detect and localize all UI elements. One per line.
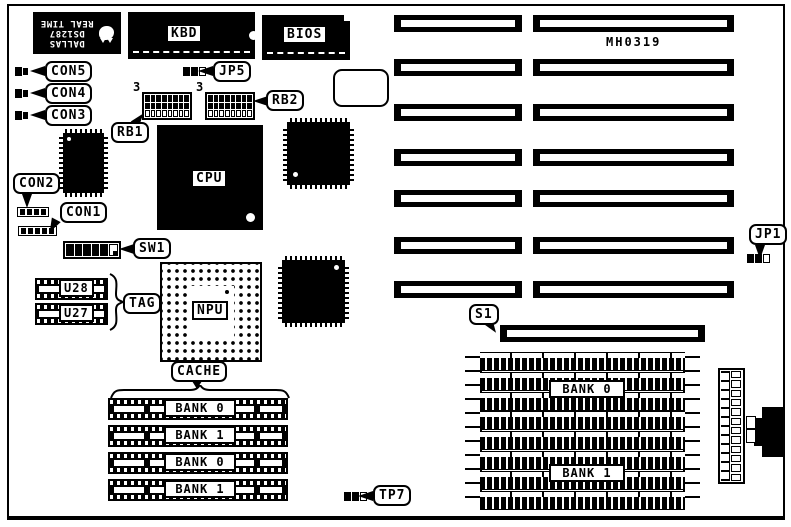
qfp1-pin1-dot <box>67 137 71 141</box>
kbd-chip-dash <box>133 51 250 53</box>
con5-jumper-icon <box>15 67 29 76</box>
cache-bank-row: BANK 0 <box>108 452 288 474</box>
cache-bank-label: BANK 0 <box>164 399 236 417</box>
npu-socket: NPU <box>160 262 262 362</box>
sw1-dip-switch <box>63 241 121 259</box>
rb2-pin1-marker: 3 <box>196 80 203 94</box>
jp5-callout: JP5 <box>213 61 251 82</box>
tag-callout: TAG <box>123 293 161 314</box>
qfp1-pins <box>104 137 108 189</box>
simm-bank-label: BANK 1 <box>549 464 625 482</box>
qfp3-chip <box>282 260 345 323</box>
jp1-callout: JP1 <box>749 224 787 245</box>
cache-row-gap <box>150 433 164 439</box>
cache-row-gap <box>114 433 144 439</box>
cache-bank-row: BANK 1 <box>108 425 288 447</box>
cache-row-gap <box>150 487 164 493</box>
isa-slot-segment <box>533 15 734 32</box>
qfp2-chip <box>287 122 350 185</box>
u28-chip: U28 <box>35 278 108 300</box>
con5-pointer <box>30 66 45 76</box>
cpu-chip: CPU <box>157 125 263 230</box>
bios-chip-dash <box>267 52 345 54</box>
cache-bank-label: BANK 1 <box>164 426 236 444</box>
qfp2-pins <box>290 185 347 189</box>
isa-slot-segment <box>533 190 734 207</box>
bios-chip: BIOS <box>262 15 350 60</box>
rtc-chip: DALLAS DS1287 REAL TIME <box>33 12 121 54</box>
dallas-logo-icon <box>99 26 114 40</box>
qfp2-pin1-dot <box>293 172 298 177</box>
isa-slot-segment <box>394 190 522 207</box>
cache-row-gap <box>150 460 164 466</box>
isa-slot-segment <box>394 149 522 166</box>
cache-row-gap <box>236 406 254 412</box>
simm-socket-area: BANK 0 BANK 1 <box>465 352 700 510</box>
rtc-line: REAL TIME <box>40 18 93 28</box>
cache-callout: CACHE <box>171 361 227 382</box>
u27-body-gap <box>39 311 59 317</box>
simm-socket <box>480 431 685 450</box>
con4-callout: CON4 <box>45 83 92 104</box>
sw1-pointer <box>119 244 134 254</box>
con2-header <box>17 207 49 217</box>
board-id: MH0319 <box>606 35 661 49</box>
cache-row-gap <box>236 460 254 466</box>
isa-slot-segment <box>533 104 734 121</box>
jp1-pointer <box>755 245 765 259</box>
jp5-pointer <box>198 66 213 76</box>
kbd-notch <box>249 31 258 40</box>
kbd-label: KBD <box>166 24 202 43</box>
cache-bank-row: BANK 0 <box>108 398 288 420</box>
isa-slot-segment <box>394 59 522 76</box>
isa-slot-segment <box>394 104 522 121</box>
u27-label: U27 <box>59 304 94 322</box>
keyboard-connector-pin <box>746 416 756 429</box>
kbd-chip: KBD <box>128 12 255 59</box>
simm-socket <box>480 491 685 510</box>
cache-row-gap <box>260 487 282 493</box>
simm-socket <box>480 411 685 430</box>
cache-bank-row: BANK 1 <box>108 479 288 501</box>
u28-body-gap <box>39 286 59 292</box>
con4-pointer <box>30 88 45 98</box>
cache-row-gap <box>114 487 144 493</box>
con1-callout: CON1 <box>60 202 107 223</box>
rtc-print: DALLAS DS1287 REAL TIME <box>33 12 121 54</box>
npu-socket-center: NPU <box>188 286 234 338</box>
simm-latch-right <box>683 352 700 510</box>
npu-label: NPU <box>192 301 228 320</box>
cache-row-gap <box>260 433 282 439</box>
cache-bank-label: BANK 0 <box>164 453 236 471</box>
qfp1-pins <box>65 193 102 197</box>
cpu-pin1-dot <box>246 213 255 222</box>
cache-pointer <box>192 381 202 389</box>
rb1-pin1-marker: 3 <box>133 80 140 94</box>
isa-slot-segment <box>533 237 734 254</box>
crystal-oscillator <box>333 69 389 107</box>
con5-callout: CON5 <box>45 61 92 82</box>
rtc-model: DS1287 <box>40 28 93 38</box>
qfp3-pin1-dot <box>334 265 339 270</box>
rb1-callout: RB1 <box>111 122 149 143</box>
con3-pointer <box>30 110 45 120</box>
rtc-brand: DALLAS <box>40 38 93 48</box>
cache-row-gap <box>114 460 144 466</box>
npu-pin1-dot <box>225 290 229 294</box>
cache-row-gap <box>236 433 254 439</box>
simm-socket <box>480 352 685 371</box>
con4-jumper-icon <box>15 89 29 98</box>
isa-slot-segment <box>533 281 734 298</box>
rb1-block <box>142 92 192 120</box>
keyboard-din-connector <box>762 407 783 457</box>
rb2-block <box>205 92 255 120</box>
cache-row-gap <box>260 460 282 466</box>
u28-label: U28 <box>59 279 94 297</box>
bios-label: BIOS <box>282 25 327 44</box>
sw1-callout: SW1 <box>133 238 171 259</box>
isa-slot-segment <box>394 237 522 254</box>
con2-callout: CON2 <box>13 173 60 194</box>
con3-jumper-icon <box>15 111 29 120</box>
u27-chip: U27 <box>35 303 108 325</box>
bios-notch <box>344 15 350 21</box>
rb2-callout: RB2 <box>266 90 304 111</box>
qfp3-pins <box>345 264 349 319</box>
power-connector-hooks <box>721 371 730 481</box>
s1-slot <box>500 325 705 342</box>
cpu-label: CPU <box>191 169 227 188</box>
cache-row-gap <box>236 487 254 493</box>
isa-slot-segment <box>533 149 734 166</box>
motherboard-diagram: DALLAS DS1287 REAL TIME KBD BIOS MH0319 … <box>0 0 791 527</box>
qfp1-chip <box>63 133 104 193</box>
con2-pointer <box>22 194 32 208</box>
cache-bank-label: BANK 1 <box>164 480 236 498</box>
qfp2-pins <box>350 126 354 181</box>
cache-row-gap <box>260 406 282 412</box>
simm-bank-label: BANK 0 <box>549 380 625 398</box>
keyboard-connector-pin <box>746 429 756 443</box>
qfp3-pins <box>285 323 342 327</box>
con3-callout: CON3 <box>45 105 92 126</box>
isa-slot-segment <box>394 15 522 32</box>
power-connector <box>718 368 745 484</box>
cache-row-gap <box>114 406 144 412</box>
s1-callout: S1 <box>469 304 499 325</box>
isa-slot-segment <box>533 59 734 76</box>
isa-slot-segment <box>394 281 522 298</box>
power-connector-pins <box>731 371 741 481</box>
tp7-callout: TP7 <box>373 485 411 506</box>
rtc-text: DALLAS DS1287 REAL TIME <box>40 18 93 48</box>
cache-row-gap <box>150 406 164 412</box>
tp7-pointer <box>358 491 373 501</box>
